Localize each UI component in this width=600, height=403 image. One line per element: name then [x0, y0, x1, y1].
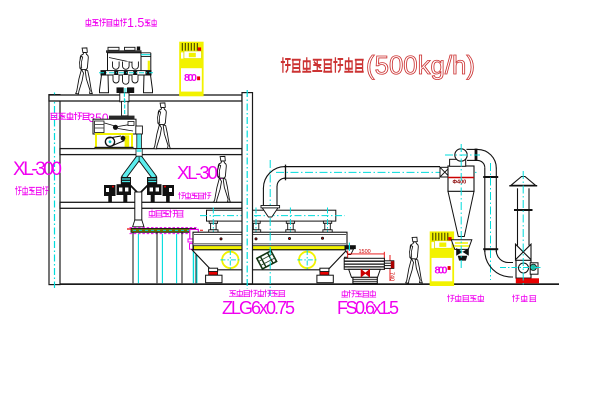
svg-text:Φ400: Φ400	[453, 180, 467, 186]
svg-text:740: 740	[389, 272, 395, 281]
svg-text:1500: 1500	[359, 249, 371, 255]
svg-text:1.5: 1.5	[127, 16, 144, 30]
svg-text:ZLG6x0.75: ZLG6x0.75	[222, 298, 295, 318]
svg-text:XL-300: XL-300	[13, 159, 62, 180]
svg-text:800: 800	[435, 265, 448, 277]
svg-text:FS0.6x1.5: FS0.6x1.5	[337, 298, 399, 318]
svg-text:(500kg/h): (500kg/h)	[366, 50, 475, 80]
svg-text:800: 800	[184, 72, 197, 84]
